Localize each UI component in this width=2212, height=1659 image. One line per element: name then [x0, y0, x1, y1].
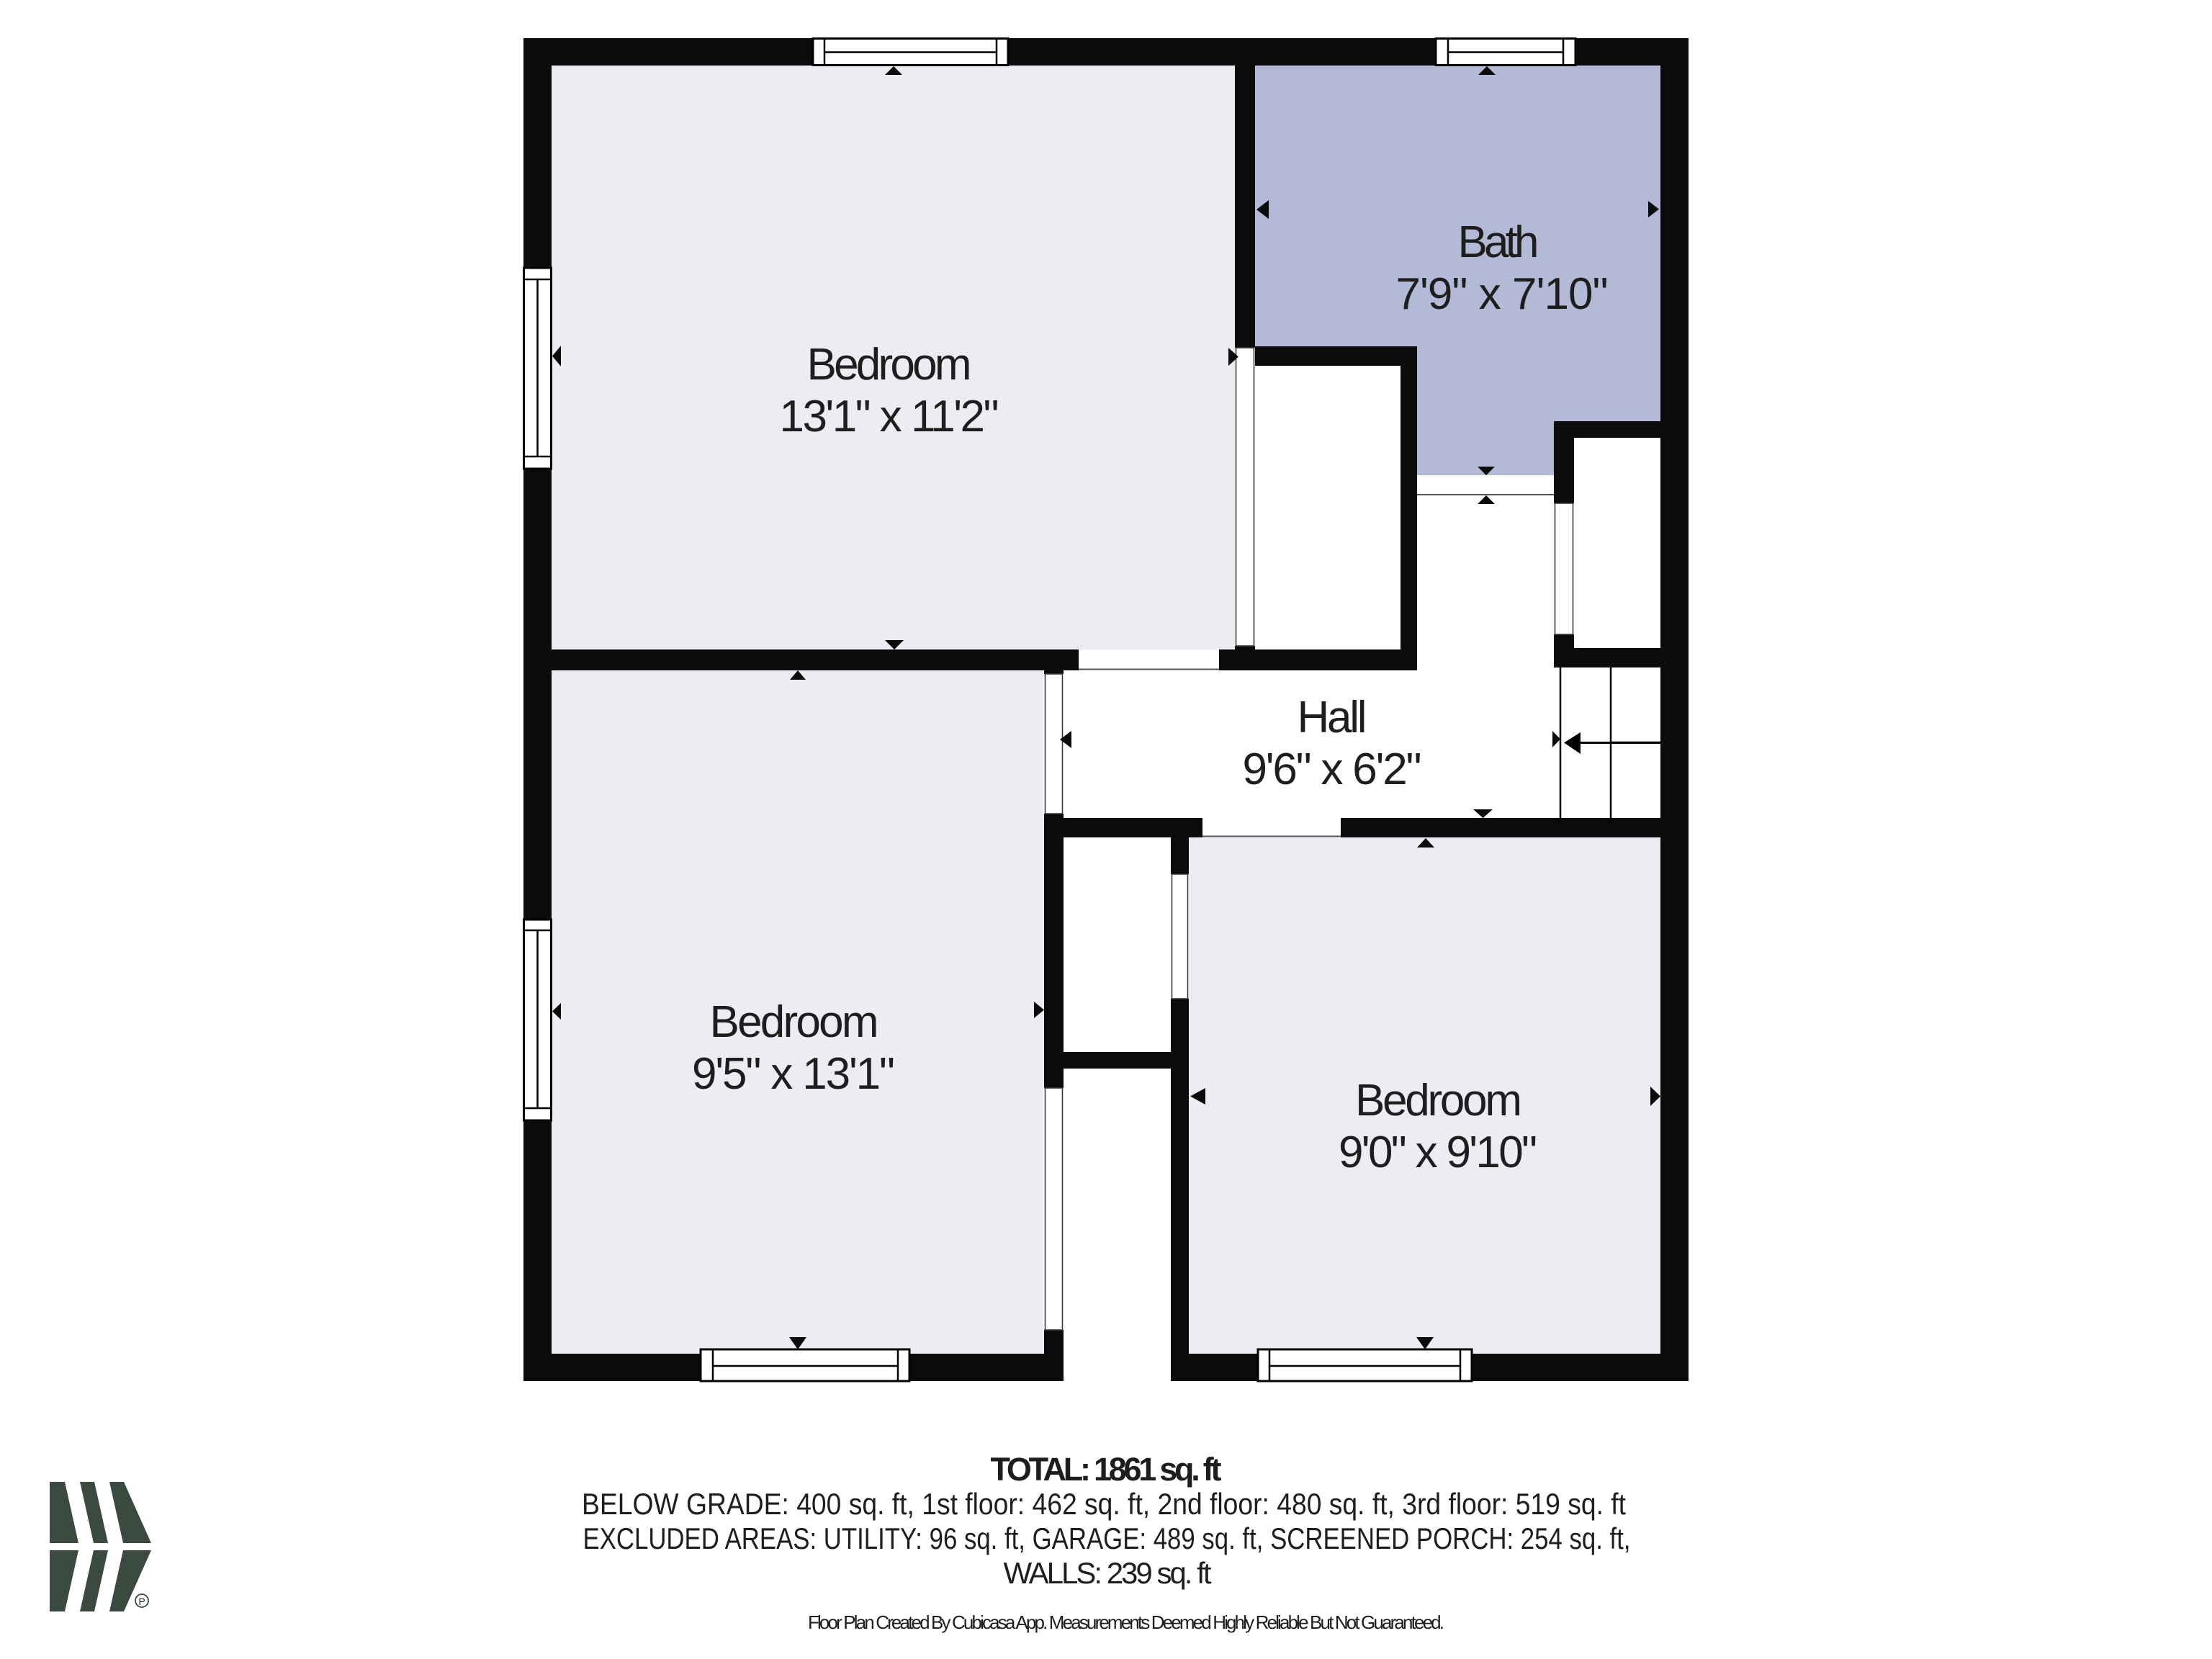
- svg-text:TOTAL: 1861 sq. ft: TOTAL: 1861 sq. ft: [991, 1451, 1222, 1488]
- svg-text:13'1" x 11'2": 13'1" x 11'2": [780, 392, 999, 441]
- svg-text:P: P: [138, 1596, 145, 1607]
- svg-text:EXCLUDED AREAS: UTILITY: 96 sq: EXCLUDED AREAS: UTILITY: 96 sq. ft, GARA…: [583, 1521, 1631, 1555]
- svg-text:Floor Plan Created By Cubicasa: Floor Plan Created By Cubicasa App. Meas…: [808, 1611, 1444, 1633]
- svg-text:WALLS: 239 sq. ft: WALLS: 239 sq. ft: [1004, 1556, 1212, 1590]
- svg-text:9'5" x 13'1": 9'5" x 13'1": [692, 1049, 895, 1099]
- svg-text:Bedroom: Bedroom: [1355, 1076, 1522, 1125]
- svg-text:BELOW GRADE: 400 sq. ft, 1st f: BELOW GRADE: 400 sq. ft, 1st floor: 462 …: [582, 1487, 1626, 1521]
- svg-text:9'6" x 6'2": 9'6" x 6'2": [1243, 745, 1422, 794]
- svg-text:Hall: Hall: [1298, 693, 1367, 742]
- svg-text:7'9" x 7'10": 7'9" x 7'10": [1396, 269, 1609, 319]
- svg-text:Bedroom: Bedroom: [807, 340, 972, 390]
- svg-text:9'0" x 9'10": 9'0" x 9'10": [1339, 1128, 1537, 1177]
- svg-text:Bath: Bath: [1458, 217, 1539, 267]
- svg-text:Bedroom: Bedroom: [710, 997, 879, 1047]
